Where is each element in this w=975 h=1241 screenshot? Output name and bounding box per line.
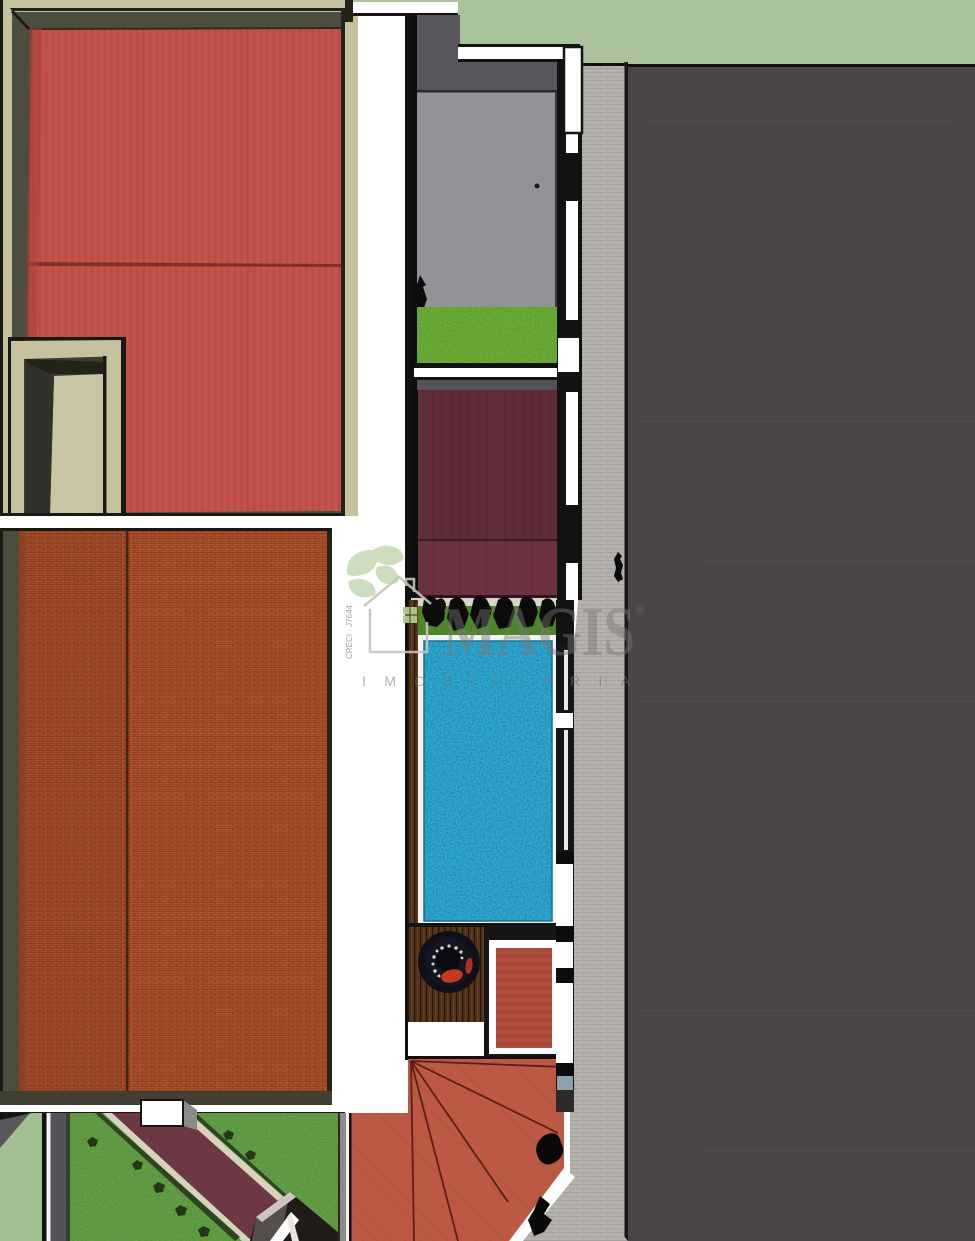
svg-text:®: ® <box>636 603 645 617</box>
svg-text:CRECI · J7644: CRECI · J7644 <box>345 604 354 659</box>
svg-text:MAGIS: MAGIS <box>443 594 635 671</box>
